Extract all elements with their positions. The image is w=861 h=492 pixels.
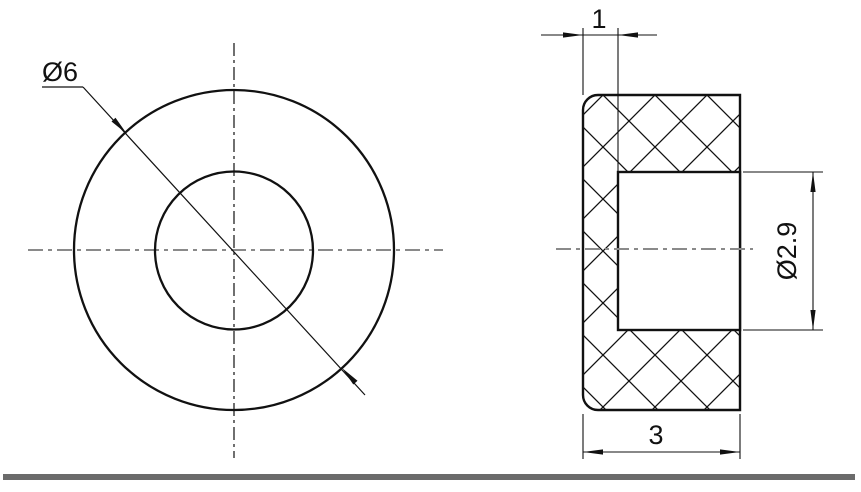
front-view: Ø6: [28, 43, 443, 458]
section-view: 1 Ø2.9 3: [541, 4, 823, 459]
diameter-line: [83, 87, 365, 395]
arrowhead-up-icon: [810, 172, 815, 192]
width-dimension: 3: [583, 414, 740, 459]
arrowhead-upper-icon: [112, 118, 128, 134]
technical-drawing: Ø6 1 Ø2.9: [0, 0, 861, 492]
wall-thickness-label: 1: [591, 4, 606, 34]
arrowhead-lower-icon: [342, 368, 358, 385]
arrowhead-right-icon: [618, 32, 638, 37]
width-label: 3: [648, 420, 663, 450]
arrowhead-left-icon: [583, 449, 603, 454]
bore-diameter-label: Ø2.9: [772, 222, 802, 281]
arrowhead-down-icon: [810, 310, 815, 330]
drawing-canvas: Ø6 1 Ø2.9: [0, 0, 861, 492]
arrowhead-right-icon: [720, 449, 740, 454]
bore-cavity: [618, 172, 740, 330]
bottom-separator: [3, 474, 855, 480]
bore-diameter-dimension: Ø2.9: [743, 172, 823, 330]
outer-diameter-label: Ø6: [42, 57, 78, 87]
outer-diameter-dimension: Ø6: [42, 57, 365, 395]
arrowhead-left-icon: [563, 32, 583, 37]
